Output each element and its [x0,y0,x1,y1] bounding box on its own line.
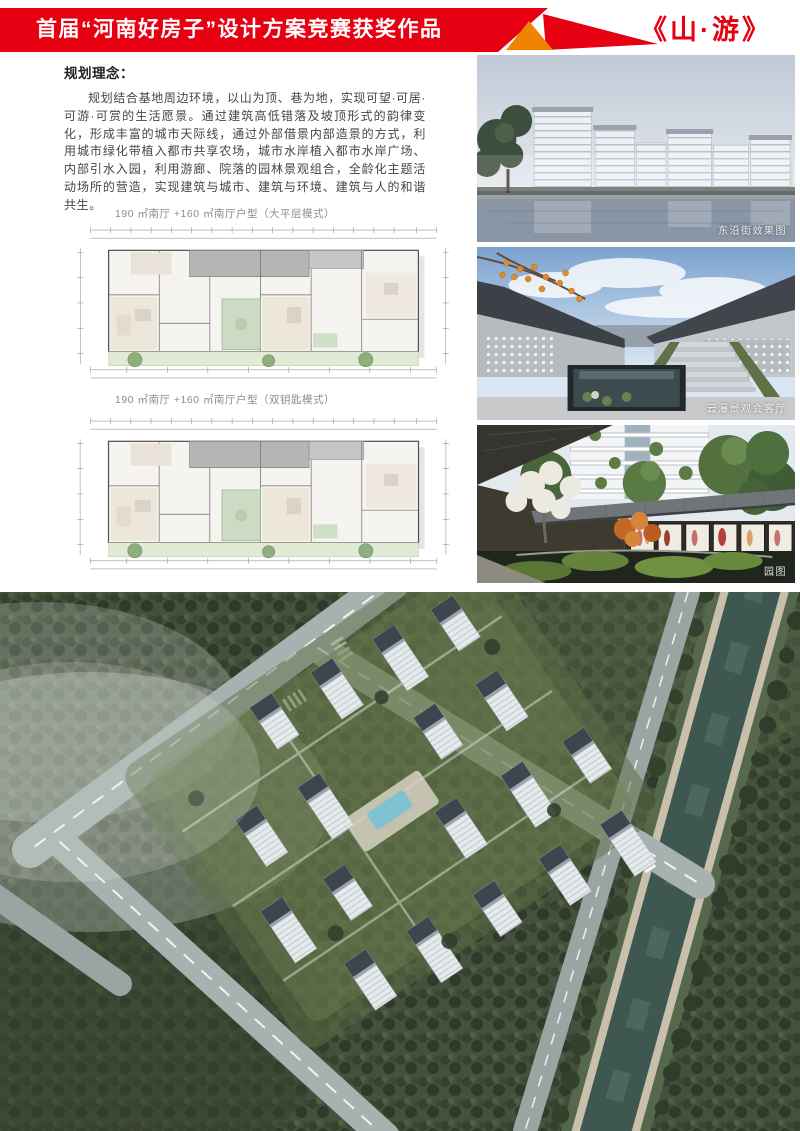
rendering-garden-courtyard: 园图 [477,425,795,583]
rendering-caption-cloud-waterfall: 云瀑景观会客厅 [707,400,788,415]
poster-board: 首届“河南好房子”设计方案竞赛获奖作品 《山·游》 规划理念： 规划结合基地周边… [0,0,800,1131]
rendering-east-street: 东沿街效果图 [477,55,795,242]
planning-concept-section: 规划理念： 规划结合基地周边环境，以山为顶、巷为地，实现可望·可居·可游·可赏的… [64,62,426,215]
rendering-cloud-waterfall: 云瀑景观会客厅 [477,247,795,420]
competition-banner-title: 首届“河南好房子”设计方案竞赛获奖作品 [36,8,443,52]
floor-plan-caption-1: 190 ㎡南厅 +160 ㎡南厅户型（大平层模式） [65,206,385,221]
floor-plan-drawing-1 [70,222,455,386]
floor-plan-drawing-2 [70,410,455,580]
concept-body-text: 规划结合基地周边环境，以山为顶、巷为地，实现可望·可居·可游·可赏的生活愿景。通… [64,90,426,215]
rendering-caption-garden: 园图 [764,563,787,578]
rendering-caption-east-street: 东沿街效果图 [718,222,787,237]
concept-heading: 规划理念： [64,62,426,82]
floor-plan-caption-2: 190 ㎡南厅 +160 ㎡南厅户型（双钥匙模式） [65,392,385,407]
work-title: 《山·游》 [640,8,772,52]
aerial-site-rendering [0,592,800,1131]
